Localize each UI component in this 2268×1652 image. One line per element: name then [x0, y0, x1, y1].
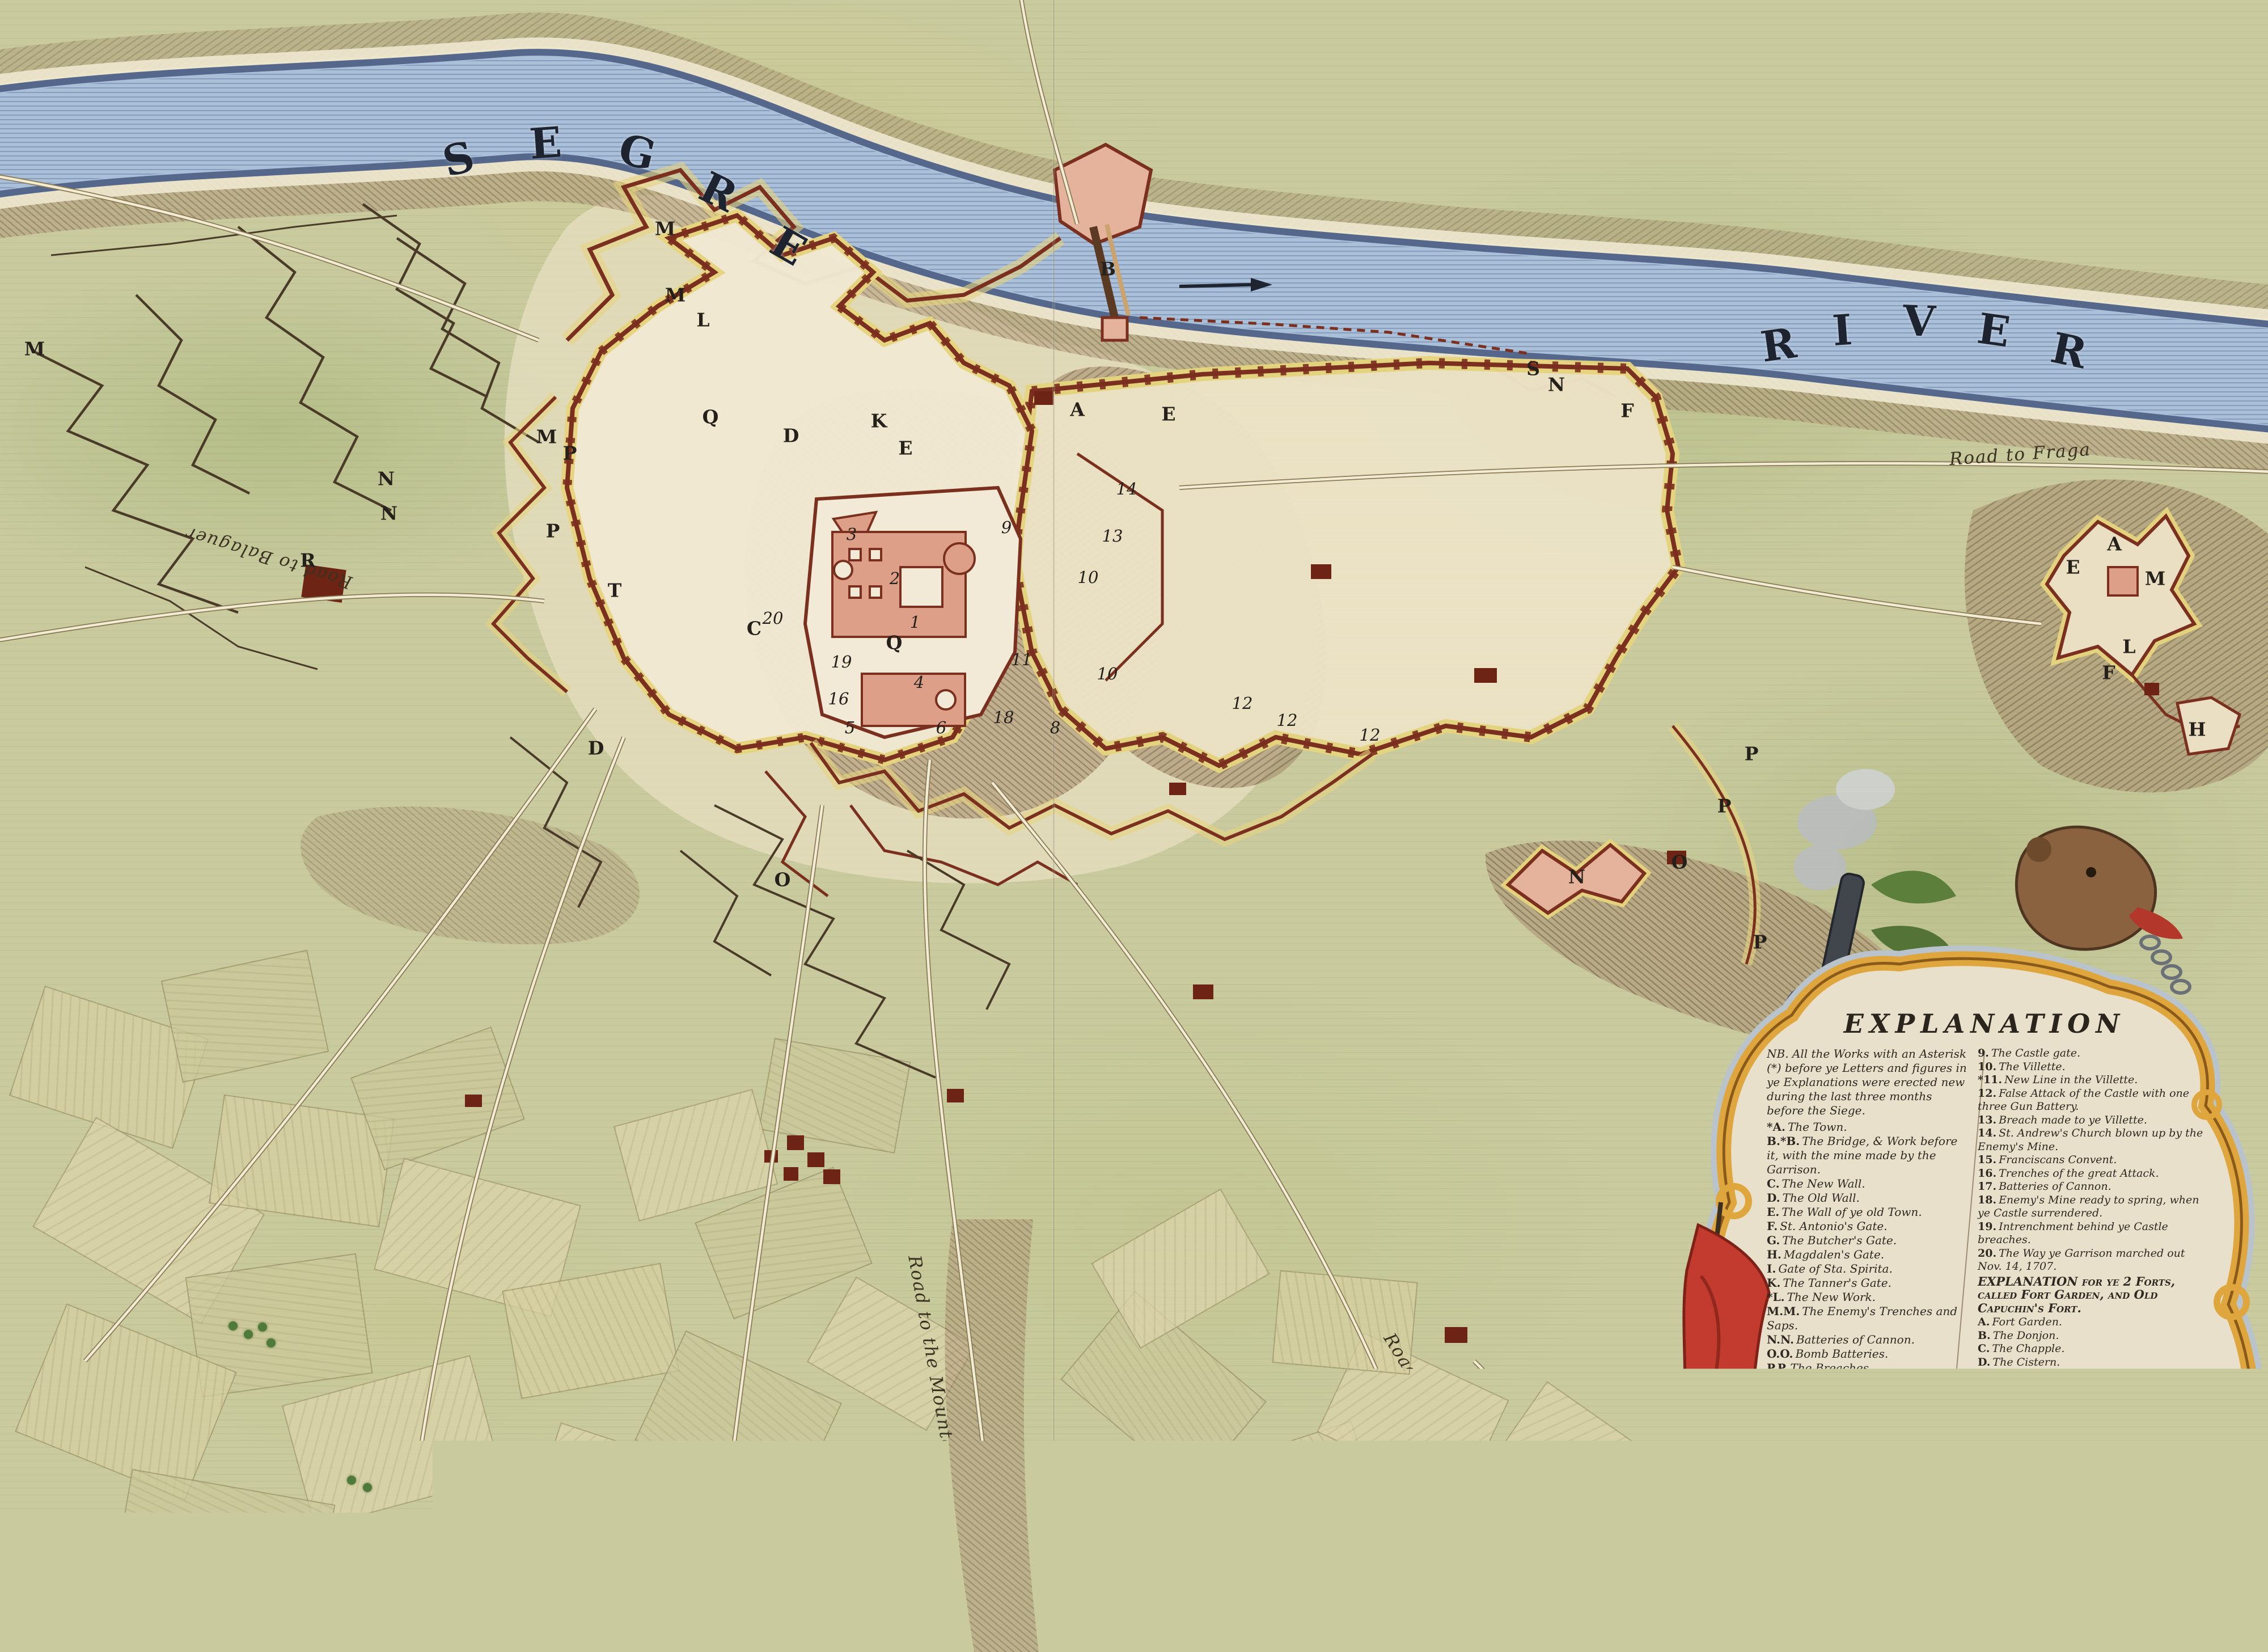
legend-entry: 13.Breach made to ye Villette.	[1978, 1114, 2209, 1127]
legend-entry: M.M.The Enemy's Trenches and Saps.	[1767, 1304, 1970, 1333]
map-marker: N	[380, 502, 397, 525]
map-marker: 16	[828, 689, 849, 708]
legend-entry: 9.The Castle gate.	[1978, 1047, 2209, 1061]
map-marker: 12	[1277, 711, 1298, 730]
legend-entry: 2.The Cathedral Church.	[1767, 1474, 1970, 1489]
legend-entry: 3.The Bishop's Palace.	[1767, 1489, 1970, 1503]
legend-entry: *O.New Line unfinished.	[1978, 1489, 2209, 1503]
legend-entry: A.Fort Garden.	[1978, 1316, 2209, 1329]
legend-note: NB. All the Works with an Asterisk (*) b…	[1767, 1047, 1970, 1118]
legend-entry: 20.The Way ye Garrison marched out Nov. …	[1978, 1247, 2209, 1274]
legend-entry: G.The Butcher's Gate.	[1767, 1233, 1970, 1248]
map-marker: Q	[703, 406, 719, 428]
cannon-decoration	[1648, 1566, 1801, 1624]
river-letter: I	[1831, 306, 1854, 356]
map-marker: N	[1548, 374, 1565, 396]
map-marker: 12	[1360, 725, 1381, 745]
map-marker: H	[2188, 719, 2206, 741]
map-marker: O	[1672, 851, 1688, 873]
map-marker: 14	[1116, 479, 1137, 498]
legend-entry: *F.The New covered Way & Glacis.	[1978, 1383, 2209, 1396]
legend-entry: R.A Church called ye Old Carms.	[1767, 1404, 1970, 1418]
legend-entry: O.O.Bomb Batteries.	[1767, 1347, 1970, 1361]
map-marker: 2	[890, 569, 900, 588]
map-marker: E	[1161, 403, 1175, 425]
legend-entry: E.The Gate.	[1978, 1369, 2209, 1383]
map-marker: 5	[845, 718, 855, 737]
map-marker: Q	[886, 632, 903, 654]
map-marker: F	[1620, 400, 1634, 422]
legend-entry: 8.8.The Castle Line.	[1767, 1560, 1970, 1574]
legend-entry: B.*B.The Bridge, & Work before it, with …	[1767, 1134, 1970, 1177]
map-marker: P	[546, 520, 560, 542]
map-marker: P	[1753, 931, 1767, 953]
legend-entry: *A.The Town.	[1767, 1120, 1970, 1134]
map-marker: P	[1745, 743, 1759, 765]
map-marker: E	[2066, 556, 2080, 578]
legend-entry: P.P.The Breaches.	[1767, 1361, 1970, 1375]
map-marker: M	[2145, 568, 2166, 590]
map-marker: 3	[847, 525, 857, 544]
map-marker: 19	[831, 652, 852, 671]
drum-decoration	[2167, 1583, 2263, 1652]
map-marker: M	[536, 426, 557, 448]
legend-left-column: NB. All the Works with an Asterisk (*) b…	[1767, 1047, 1970, 1574]
cartouche-title: EXPLANATION	[1780, 1008, 2189, 1039]
legend-entry: K.The Tanner's Gate.	[1767, 1276, 1970, 1290]
legend-entry: 18.Enemy's Mine ready to spring, when ye…	[1978, 1194, 2209, 1220]
map-marker: M	[655, 218, 676, 240]
legend-entry: B.The Donjon.	[1978, 1329, 2209, 1343]
cartouche-smoke	[1794, 769, 1895, 890]
map-marker: 1	[910, 612, 920, 632]
legend-entry: 16.Trenches of the great Attack.	[1978, 1167, 2209, 1181]
map-marker: 12	[1232, 694, 1253, 713]
legend-entry: 7.Two Snow-Wells.	[1767, 1545, 1970, 1560]
legend-entry: 19.Intrenchment behind ye Castle breache…	[1978, 1220, 2209, 1247]
legend-entry: 4.The Donjon.	[1767, 1503, 1970, 1517]
river-letter: E	[528, 118, 563, 169]
map-marker: B	[1100, 258, 1116, 280]
map-marker: E	[898, 437, 912, 459]
legend-entry: *G.The New Intrenchment.	[1978, 1396, 2209, 1409]
map-marker: 10	[1097, 664, 1118, 683]
map-marker: 4	[914, 673, 924, 692]
map-marker: F	[2102, 662, 2115, 684]
legend-entry: N.N.Batteries of Cannon.	[1767, 1333, 1970, 1347]
legend-entry: E.The Wall of ye old Town.	[1767, 1205, 1970, 1219]
map-marker: A	[2107, 533, 2122, 555]
map-marker: R	[300, 550, 315, 572]
map-marker: N	[378, 468, 395, 490]
map-marker: D	[588, 737, 604, 759]
legend-entry: 5.Palma's Work, repaired.	[1767, 1517, 1970, 1531]
map-marker: L	[696, 309, 709, 331]
river-letter: V	[1902, 297, 1936, 347]
legend-entry: S.Works raised by the Water side.	[1767, 1418, 1970, 1432]
legend-entry: 15.Franciscans Convent.	[1978, 1154, 2209, 1167]
legend-entry: H.Magdalen's Gate.	[1767, 1248, 1970, 1262]
map-marker: L	[2122, 636, 2135, 658]
map-marker: A	[1070, 399, 1085, 421]
legend-entry: *H.New Little Fort.	[1978, 1409, 2209, 1423]
legend-entry: *11.New Line in the Villette.	[1978, 1074, 2209, 1087]
map-marker: O	[775, 869, 791, 891]
legend-entry: *M.New Scarp.	[1978, 1463, 2209, 1476]
legend-entry: 1.The Castle.	[1767, 1460, 1970, 1474]
legend-entry: *L.Communication from ye Little Fort to …	[1978, 1436, 2209, 1463]
legend-entry: 12.False Attack of the Castle with one t…	[1978, 1087, 2209, 1114]
legend-entry: F.St. Antonio's Gate.	[1767, 1219, 1970, 1233]
legend-entry: 14.St. Andrew's Church blown up by the E…	[1978, 1127, 2209, 1154]
legend-entry: *I.The Guard House.	[1978, 1422, 2209, 1436]
map-marker: 10	[1078, 568, 1099, 587]
river-letter: E	[1974, 304, 2013, 357]
legend-entry: I.Gate of Sta. Spirita.	[1767, 1262, 1970, 1276]
map-marker: K	[871, 410, 887, 432]
river-letter: R	[1758, 319, 1799, 372]
legend-entry: *L.The New Work.	[1767, 1290, 1970, 1304]
map-marker: 13	[1102, 526, 1123, 546]
legend-entry: C.The Chapple.	[1978, 1342, 2209, 1356]
legend-entry: C.The New Wall.	[1767, 1177, 1970, 1191]
map-marker: 9	[1001, 518, 1012, 537]
legend-entry: N.Old Capuchin's Fort unfinish'd.	[1978, 1476, 2209, 1489]
legend-entry: D.The Old Wall.	[1767, 1191, 1970, 1205]
map-marker: C	[747, 618, 761, 640]
map-marker: 11	[1012, 650, 1033, 669]
legend-entry: T.The Communication made by ye Enemy fro…	[1767, 1432, 1970, 1460]
map-marker: N	[1568, 866, 1585, 888]
map-marker: 8	[1050, 718, 1060, 737]
map-marker: P	[563, 442, 577, 464]
legend-entry: *P.New Scarp to this Fort.	[1978, 1502, 2209, 1516]
map-marker: 18	[993, 708, 1014, 727]
engraver-signature: I. Basire Sculp.	[1967, 1612, 2138, 1625]
siege-map-of-lerida: SEGRERIVER Road to FragaRoad to Balaguer…	[0, 0, 2268, 1652]
legend-entry: D.The Cistern.	[1978, 1356, 2209, 1370]
map-marker: P	[1717, 795, 1732, 817]
map-marker: M	[665, 284, 686, 306]
map-marker: S	[1526, 358, 1540, 380]
paper-fold-crease	[1052, 0, 1055, 1652]
map-marker: 6	[936, 718, 946, 737]
legend-entry: Q.Q.Intrenchments behind the breaches.	[1767, 1375, 1970, 1404]
map-marker: D	[783, 425, 799, 447]
legend-entry: 17.Batteries of Cannon.	[1978, 1180, 2209, 1194]
legend-right-column: 9.The Castle gate.10.The Villette.*11.Ne…	[1978, 1047, 2209, 1516]
map-marker: 20	[763, 609, 784, 628]
legend-entry: 10.The Villette.	[1978, 1061, 2209, 1074]
legend-entry: *6.The New Line.	[1767, 1531, 1970, 1545]
legend-subheading: EXPLANATION for ye 2 Forts, called Fort …	[1978, 1275, 2209, 1315]
map-marker: M	[24, 338, 45, 360]
map-marker: T	[608, 580, 622, 602]
